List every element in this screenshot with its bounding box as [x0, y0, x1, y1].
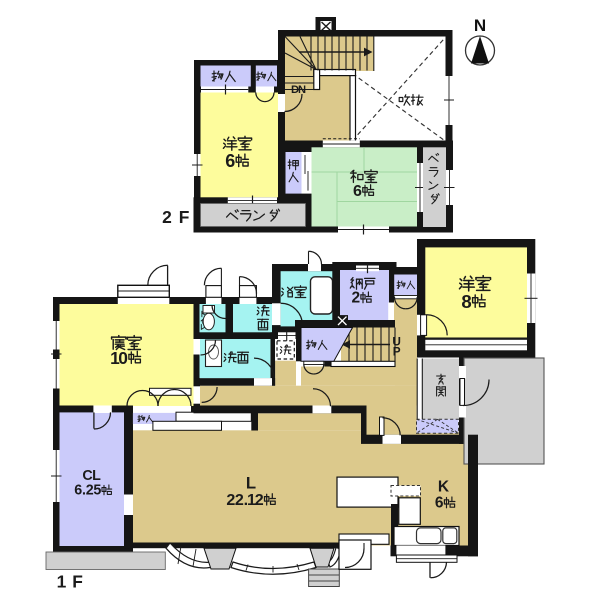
svg-text:1: 1	[57, 572, 67, 592]
svg-text:2: 2	[255, 491, 264, 509]
svg-text:P: P	[393, 344, 401, 358]
svg-text:2: 2	[235, 491, 244, 509]
svg-text:N: N	[474, 16, 486, 35]
svg-text:K: K	[438, 479, 450, 496]
svg-text:6: 6	[225, 151, 235, 171]
svg-text:6: 6	[353, 182, 362, 200]
svg-text:6: 6	[435, 495, 444, 512]
svg-text:2: 2	[351, 290, 360, 307]
svg-text:8: 8	[461, 291, 471, 312]
svg-text:L: L	[246, 474, 256, 493]
svg-text:F: F	[179, 207, 190, 227]
svg-text:5: 5	[93, 483, 101, 499]
svg-text:F: F	[72, 572, 83, 592]
svg-text:2: 2	[162, 207, 172, 227]
svg-text:0: 0	[118, 348, 128, 368]
